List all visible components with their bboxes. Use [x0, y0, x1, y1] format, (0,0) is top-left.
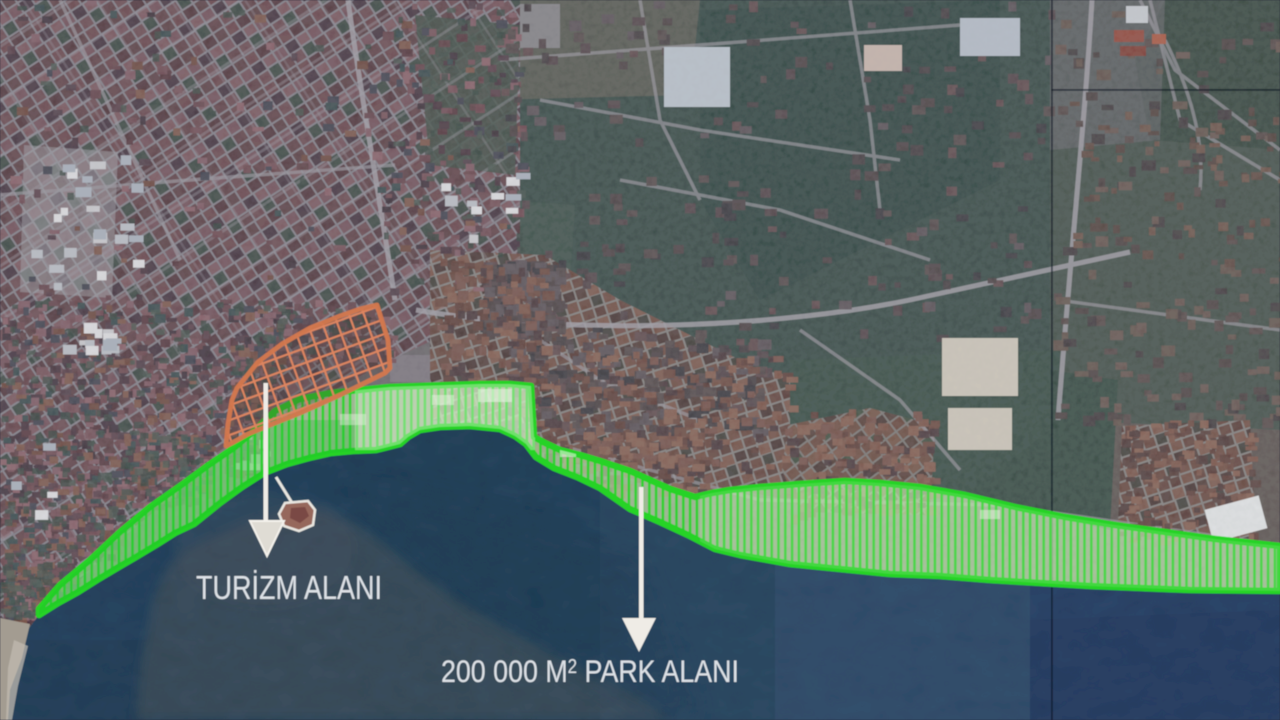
svg-text:TURİZM ALANI: TURİZM ALANI	[196, 569, 382, 606]
svg-text:200 000 M2 PARK ALANI: 200 000 M2 PARK ALANI	[441, 653, 739, 689]
